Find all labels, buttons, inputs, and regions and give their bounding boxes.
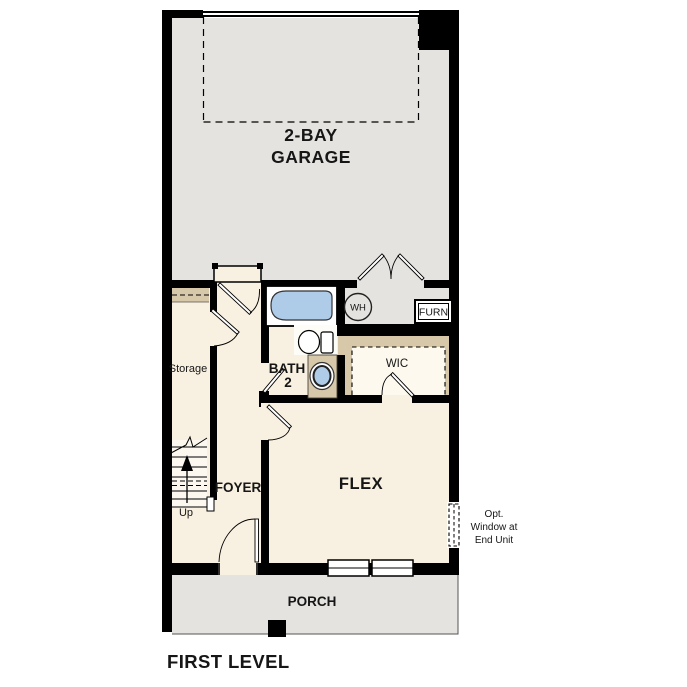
- floor-plan-canvas: WH FURN 2-BAY GARAGE Storage BATH 2 WIC …: [0, 0, 687, 687]
- storage-label: Storage: [169, 363, 208, 375]
- storage-door-opening: [210, 312, 217, 346]
- wall-flex-west: [261, 440, 269, 563]
- opt-window-note-line3: End Unit: [475, 535, 514, 546]
- mech-door-opening: [357, 280, 424, 288]
- bathtub: [271, 291, 332, 320]
- up-label: Up: [179, 507, 193, 519]
- wic-door-opening: [382, 395, 412, 403]
- wall-top-right-block: [419, 10, 459, 50]
- flex-door-opening: [261, 403, 269, 440]
- wall-right-upper: [449, 50, 459, 502]
- toilet-tank: [321, 332, 333, 353]
- porch-pillar: [268, 620, 286, 637]
- sink-basin: [314, 366, 331, 386]
- bath-label-line2: 2: [284, 375, 292, 390]
- wall-garage-south-a: [162, 280, 217, 288]
- toilet-bowl: [299, 331, 320, 354]
- garage-entry-door-frame: [214, 266, 261, 282]
- wall-mid-south-b: [412, 395, 459, 403]
- garage-label-line1: 2-BAY: [284, 125, 337, 145]
- furnace-label: FURN: [419, 307, 448, 319]
- water-heater-label: WH: [350, 303, 366, 314]
- garage-label-line2: GARAGE: [271, 147, 351, 167]
- garage-door-line-1: [203, 11, 419, 13]
- wic-inner-floor: [352, 347, 445, 395]
- flex-label: FLEX: [339, 475, 383, 493]
- floor-plan-page: WH FURN 2-BAY GARAGE Storage BATH 2 WIC …: [0, 0, 687, 687]
- wall-left: [162, 10, 172, 632]
- wic-label: WIC: [386, 358, 408, 370]
- stair-newel-cap: [207, 497, 214, 511]
- opt-window-note-line1: Opt.: [485, 509, 504, 520]
- bath-label-line1: BATH: [269, 361, 306, 376]
- front-door-opening: [218, 563, 258, 575]
- plan-title: FIRST LEVEL: [167, 651, 290, 672]
- wall-garage-south-c: [424, 280, 459, 288]
- foyer-label: FOYER: [215, 480, 262, 495]
- wall-storage-east-lower: [210, 346, 217, 500]
- wall-top-left: [162, 10, 203, 18]
- garage-door-line-2: [203, 15, 419, 17]
- wall-storage-east-upper: [210, 288, 217, 312]
- front-door-leaf: [255, 519, 259, 562]
- wall-south-a: [162, 563, 218, 575]
- wall-mech-wic-divider: [337, 324, 459, 336]
- door-jamb-right: [257, 263, 263, 269]
- opt-window-note-line2: Window at: [471, 522, 518, 533]
- porch-label: PORCH: [288, 594, 337, 609]
- door-jamb-left: [212, 263, 218, 269]
